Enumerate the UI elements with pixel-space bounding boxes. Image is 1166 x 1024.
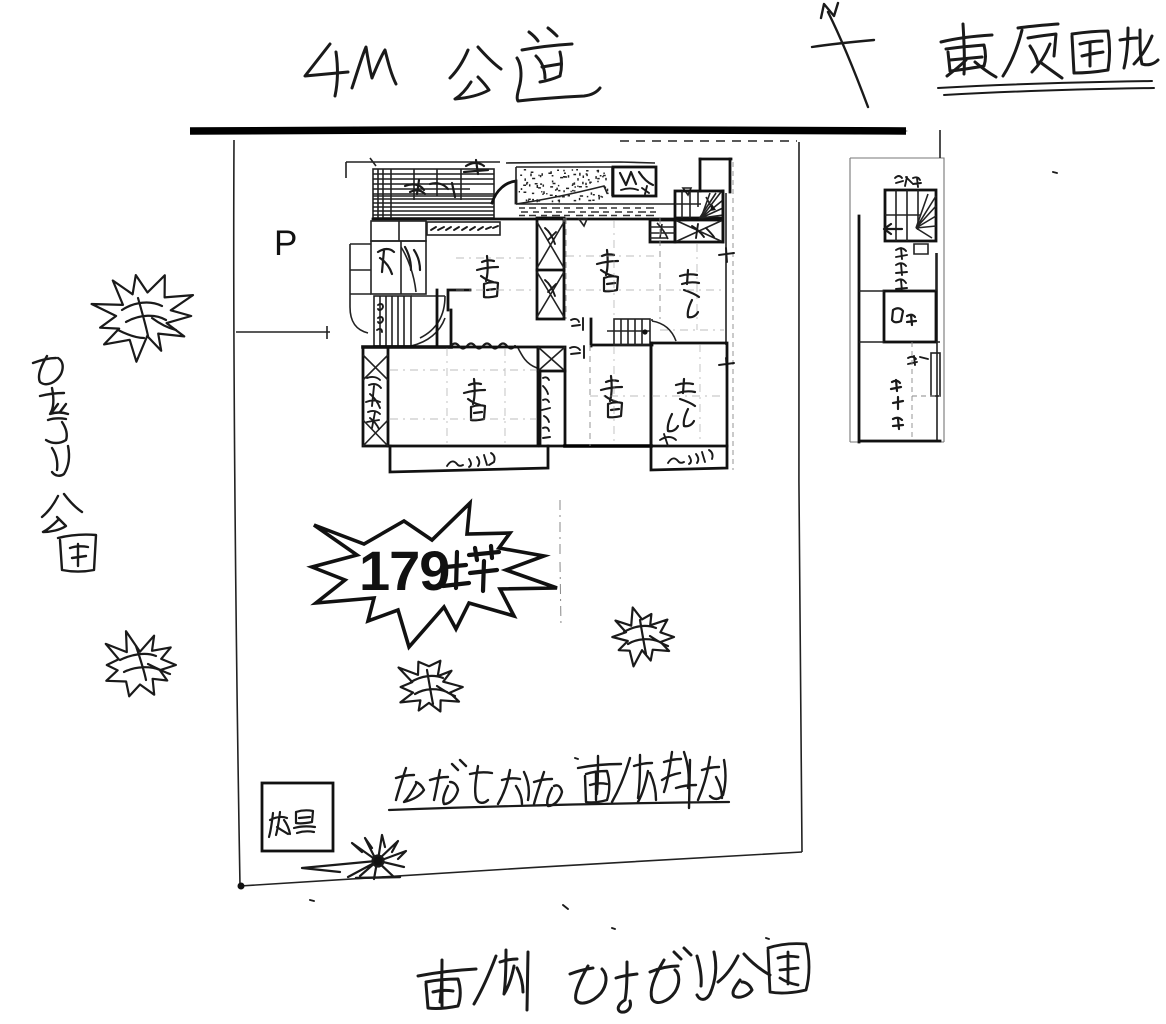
svg-text:179: 179 xyxy=(359,539,449,602)
svg-text:P: P xyxy=(274,224,297,263)
